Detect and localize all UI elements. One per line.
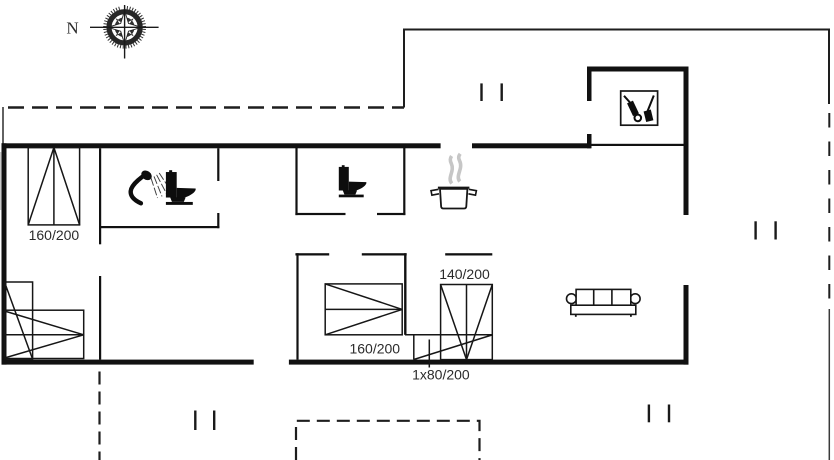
svg-text:160/200: 160/200	[29, 227, 80, 243]
svg-text:160/200: 160/200	[349, 340, 400, 356]
svg-text:1x80/200: 1x80/200	[412, 366, 470, 382]
svg-text:140/200: 140/200	[439, 266, 490, 282]
svg-text:N: N	[66, 19, 78, 38]
